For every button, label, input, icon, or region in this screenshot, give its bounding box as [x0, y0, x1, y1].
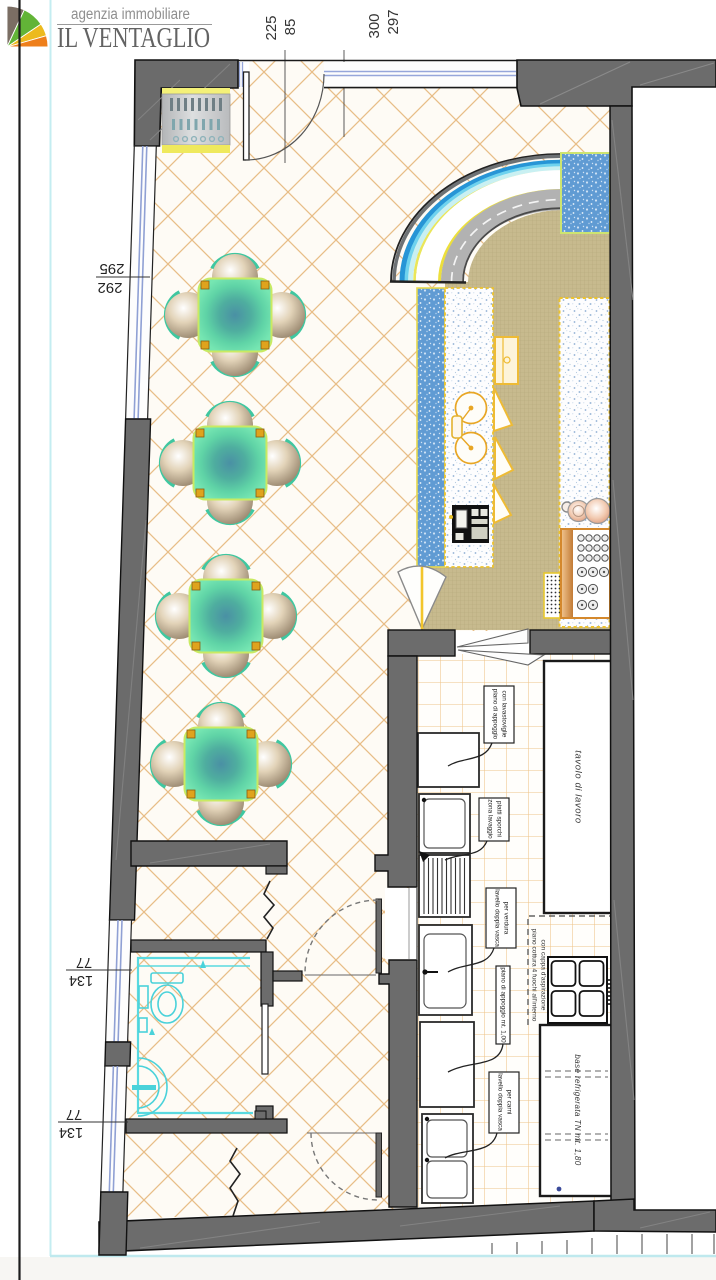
svg-text:base refrigerata TN mt. 1,80: base refrigerata TN mt. 1,80	[573, 1054, 582, 1165]
svg-text:piano di appoggio mt. 1,00: piano di appoggio mt. 1,00	[499, 967, 506, 1043]
svg-text:piano di appoggio: piano di appoggio	[491, 689, 498, 740]
svg-text:295: 295	[99, 260, 124, 277]
svg-text:134: 134	[69, 972, 93, 988]
svg-text:lavello doppia vasca: lavello doppia vasca	[496, 1073, 503, 1131]
svg-text:300: 300	[366, 13, 383, 38]
svg-text:con lavastoviglie: con lavastoviglie	[500, 691, 507, 738]
svg-text:77: 77	[66, 1106, 82, 1122]
svg-text:zona lavaggio: zona lavaggio	[486, 799, 493, 839]
svg-text:134: 134	[59, 1124, 83, 1140]
svg-text:per carni: per carni	[505, 1090, 512, 1115]
svg-text:agenzia immobiliare: agenzia immobiliare	[71, 6, 190, 23]
svg-text:tavolo di lavoro: tavolo di lavoro	[572, 750, 583, 824]
svg-text:con cappa d'aspirazione: con cappa d'aspirazione	[539, 940, 546, 1011]
svg-text:225: 225	[263, 15, 280, 40]
svg-text:piano cottura 4 fuochi all'int: piano cottura 4 fuochi all'interno	[530, 929, 537, 1022]
svg-text:297: 297	[385, 9, 402, 34]
svg-text:piatti sporchi: piatti sporchi	[495, 801, 502, 837]
svg-text:IL VENTAGLIO: IL VENTAGLIO	[57, 23, 210, 54]
svg-text:77: 77	[76, 954, 92, 970]
svg-text:85: 85	[282, 19, 299, 36]
svg-text:lavello doppia vasca: lavello doppia vasca	[493, 889, 500, 947]
svg-text:292: 292	[97, 279, 122, 296]
svg-text:per verdura: per verdura	[502, 902, 509, 935]
